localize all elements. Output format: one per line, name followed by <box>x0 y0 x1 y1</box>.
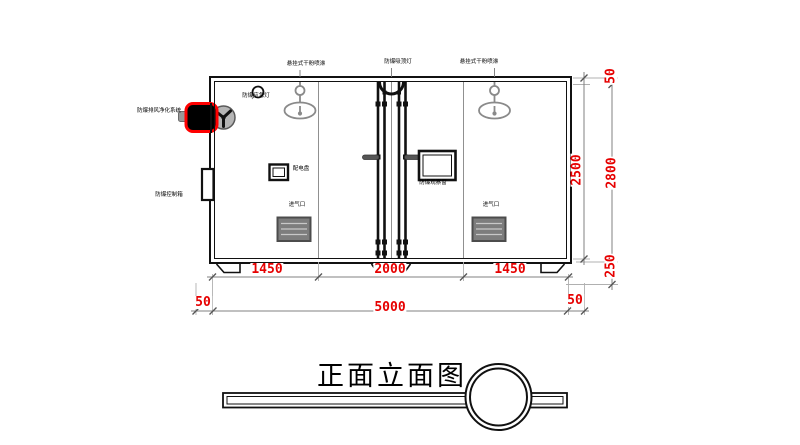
air-inlet-grille-right <box>473 218 506 242</box>
power-panel-icon <box>270 165 289 181</box>
dim-bottom-right-1450: 1450 <box>493 263 526 276</box>
sprinkler-left-icon <box>285 82 316 119</box>
drawing-title: 正面立面图 <box>317 354 467 393</box>
dim-right-250: 250 <box>605 253 618 278</box>
dim-right-50: 50 <box>605 67 618 85</box>
purifier-system-label: 防爆排风净化系统 <box>137 109 181 115</box>
sprinkler-left-label: 悬挂式干粉喷淋 <box>287 62 326 68</box>
air-inlet-grille-left <box>278 218 311 242</box>
emergency-lamp-label: 防爆应急灯 <box>242 94 270 100</box>
dim-bottom-left-50: 50 <box>194 296 212 309</box>
elevation-drawing-page: 悬挂式干粉喷淋 防爆吸顶灯 悬挂式干粉喷淋 防爆应急灯 防爆排风净化系统 防爆控… <box>0 0 800 445</box>
sprinkler-right-label: 悬挂式干粉喷淋 <box>460 60 499 66</box>
label-leaders <box>252 68 495 99</box>
dim-right-2800: 2800 <box>606 156 619 189</box>
air-inlet-right-label: 进气口 <box>483 203 500 209</box>
control-box-label: 防爆控制箱 <box>155 193 183 199</box>
power-panel-label: 配电盘 <box>293 167 310 173</box>
air-inlet-left-label: 进气口 <box>289 203 306 209</box>
purifier-unit-icon <box>179 103 236 133</box>
dim-bottom-total-5000: 5000 <box>373 301 406 314</box>
cabinet-outline <box>210 77 571 263</box>
ceiling-lamp-label: 防爆吸顶灯 <box>384 60 412 66</box>
observation-window-icon <box>419 151 456 180</box>
dim-bottom-left-1450: 1450 <box>250 263 283 276</box>
dim-bottom-center-2000: 2000 <box>373 263 406 276</box>
observation-window-label: 防爆观察窗 <box>419 181 447 187</box>
sprinkler-right-icon <box>479 82 510 119</box>
dim-bottom-right-50: 50 <box>566 294 584 307</box>
dim-right-2500: 2500 <box>571 153 584 186</box>
control-box-icon <box>202 169 214 200</box>
